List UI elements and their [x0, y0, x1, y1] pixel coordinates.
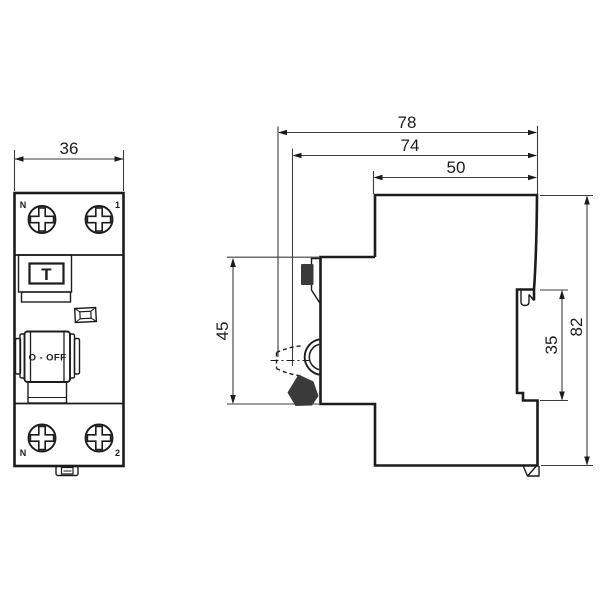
indicator-window — [75, 307, 97, 322]
dim-36-label: 36 — [60, 139, 79, 158]
dim-45-arrow-top — [230, 258, 236, 267]
terminal-screw-dark — [301, 264, 314, 285]
screw-top-left — [29, 206, 56, 233]
side-din-clip — [523, 466, 539, 477]
toggle-lever-solid — [288, 375, 319, 407]
dim-45-label: 45 — [213, 322, 232, 341]
side-terminal — [301, 259, 320, 303]
front-body-outline — [15, 193, 124, 466]
dim-74-arrow-left — [293, 153, 302, 159]
test-button-window — [22, 292, 71, 302]
dim-74-label: 74 — [401, 136, 420, 155]
dim-50-arrow-left — [374, 175, 383, 181]
indicator-bevels — [75, 307, 97, 322]
dim-78-extension-lines — [278, 126, 538, 357]
dim-78-arrow-right — [528, 130, 537, 136]
side-profile-main — [321, 257, 538, 466]
drawing-svg: 36 N 1 N 2 T — [0, 0, 600, 600]
screw-bottom-left — [29, 425, 56, 452]
dim-35-arrow-top — [559, 290, 565, 299]
terminal-label-top-right: 1 — [115, 200, 120, 210]
rocker-switch: O - OFF — [16, 332, 80, 404]
dim-50-label: 50 — [447, 158, 466, 177]
dimension-width-36: 36 — [15, 139, 124, 191]
rocker-lower-plate — [28, 382, 67, 403]
indicator-inner — [80, 311, 91, 319]
test-button-assembly: T — [19, 255, 72, 302]
dim-82-arrow-top — [584, 196, 590, 205]
dim-74-arrow-right — [528, 153, 537, 159]
front-view: 36 N 1 N 2 T — [15, 139, 124, 476]
side-view: 78 74 50 45 — [213, 113, 593, 476]
dim-82-label: 82 — [567, 318, 586, 337]
screw-bottom-right — [86, 425, 113, 452]
dimension-recess-35: 35 — [540, 290, 568, 401]
screw-top-right — [86, 206, 113, 233]
dimension-depth-74: 74 — [293, 136, 538, 366]
dimension-height-82: 82 — [540, 196, 593, 466]
dim-82-arrow-bottom — [584, 457, 590, 466]
toggle-pivot-arc-inner — [309, 344, 319, 369]
dim-78-arrow-left — [278, 130, 287, 136]
dim-45-arrow-bottom — [230, 395, 236, 404]
terminal-label-bottom-right: 2 — [115, 448, 120, 458]
switch-state-label: O - OFF — [29, 353, 67, 364]
dimension-depth-50: 50 — [374, 158, 538, 194]
dim-35-arrow-bottom — [559, 392, 565, 401]
terminal-label-bottom-left: N — [20, 448, 27, 458]
front-din-clip — [56, 466, 78, 476]
dim-36-arrow-left — [15, 156, 24, 162]
dim-50-arrow-right — [528, 175, 537, 181]
dim-78-label: 78 — [398, 113, 417, 132]
technical-drawing: 36 N 1 N 2 T — [0, 0, 600, 600]
dim-36-arrow-right — [115, 156, 124, 162]
side-body-profile — [321, 195, 540, 476]
terminal-label-top-left: N — [20, 200, 27, 210]
side-profile-top-right — [375, 195, 537, 301]
test-button-label: T — [41, 265, 52, 284]
dim-35-label: 35 — [542, 336, 561, 355]
din-hook-detail — [521, 290, 534, 306]
rocker-flange-right-outer — [75, 339, 80, 375]
